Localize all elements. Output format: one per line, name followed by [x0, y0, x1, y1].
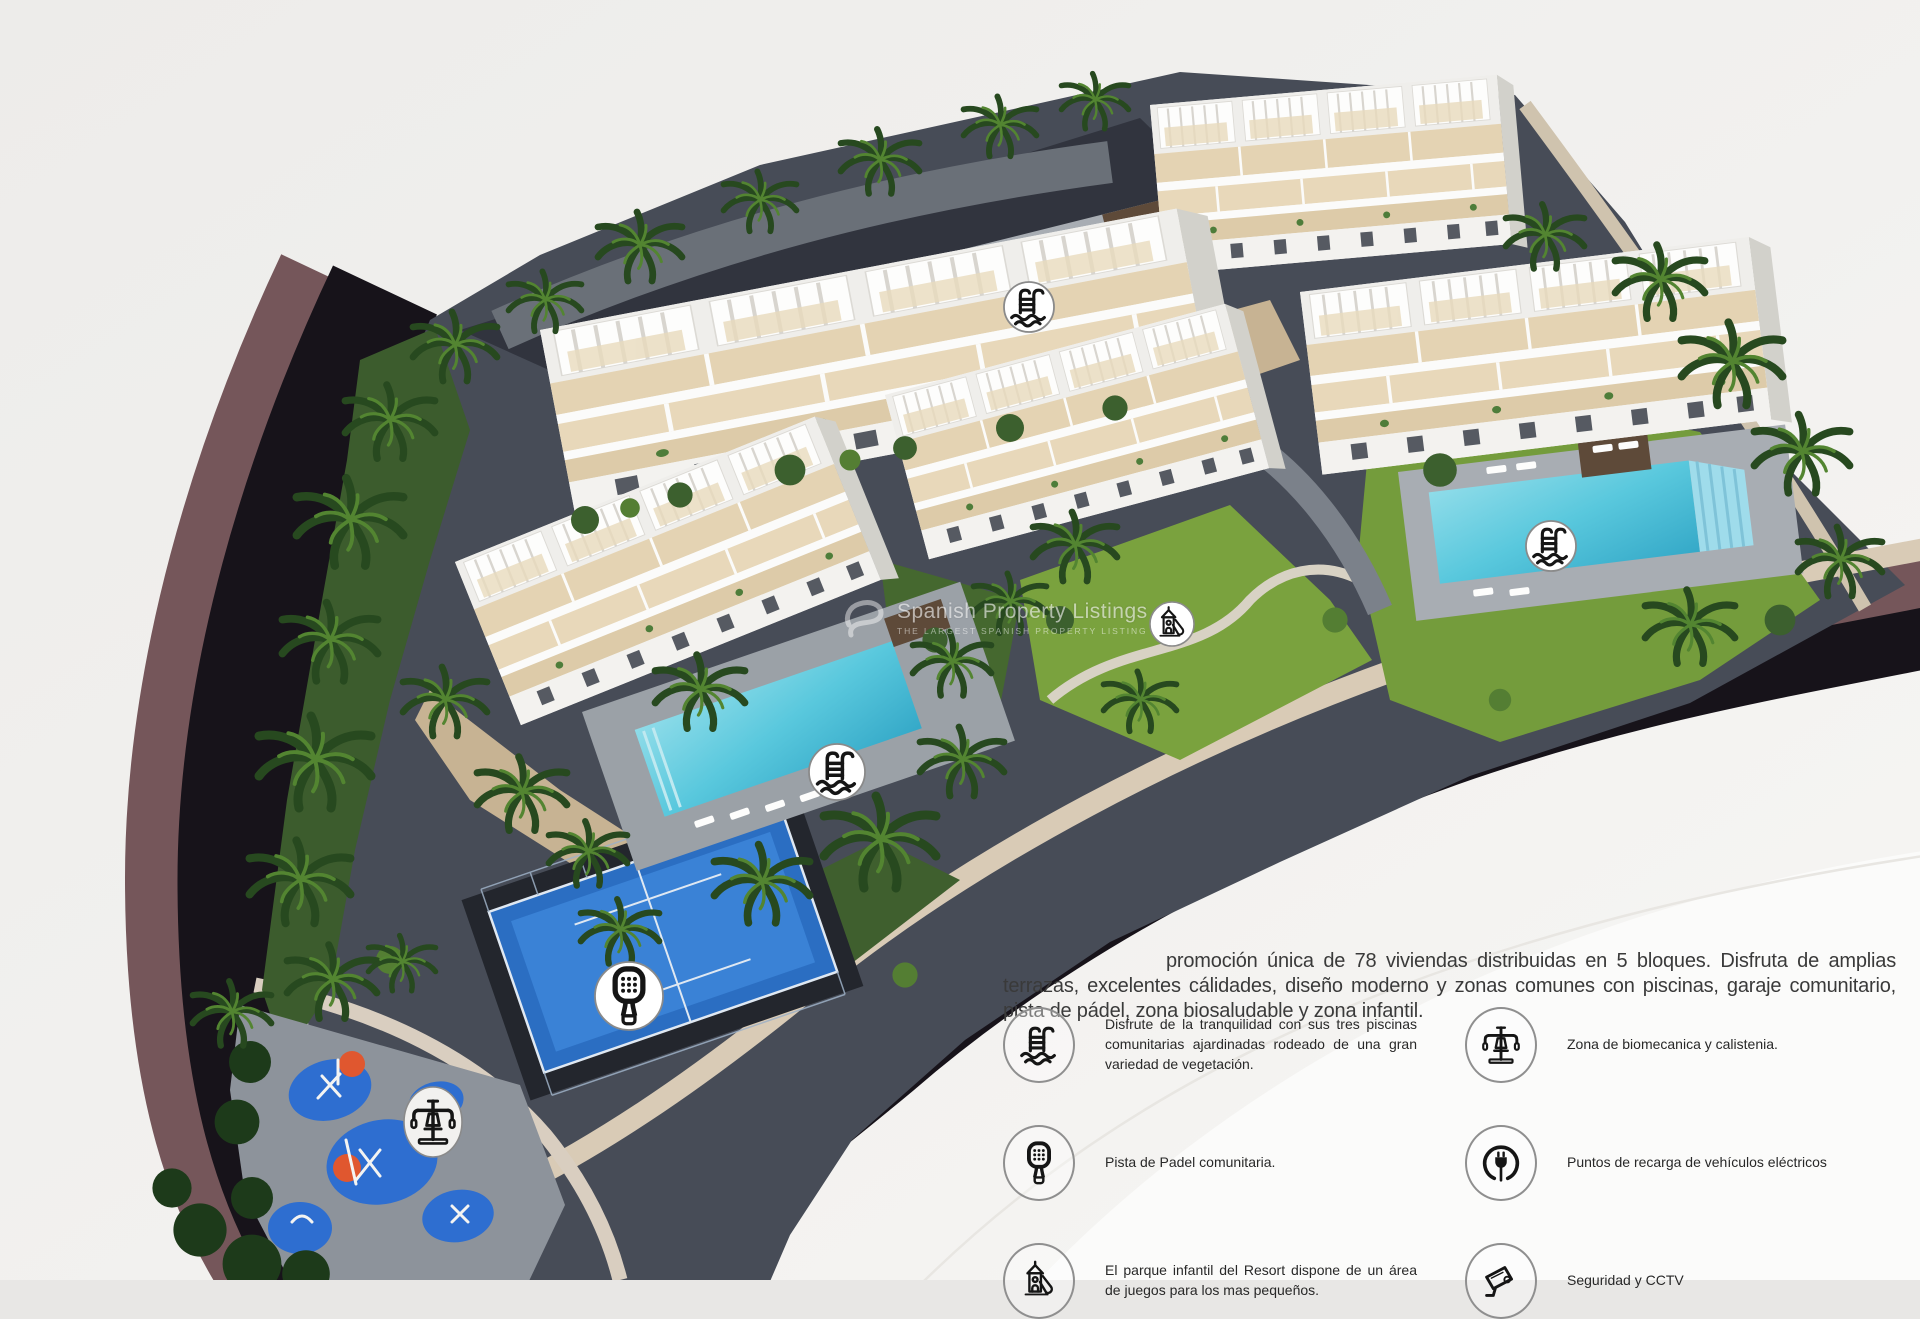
- map-marker-padel: [595, 962, 663, 1030]
- legend-item-pools: Disfrute de la tranquilidad con sus tres…: [1003, 1007, 1465, 1083]
- legend-item-label: Puntos de recarga de vehículos eléctrico…: [1567, 1153, 1920, 1173]
- legend-item-biomechanics: Zona de biomecanica y calistenia.: [1465, 1007, 1920, 1083]
- map-marker-pool-south: [809, 744, 865, 800]
- legend-item-ev-charging: Puntos de recarga de vehículos eléctrico…: [1465, 1125, 1920, 1201]
- legend-item-playground: El parque infantil del Resort dispone de…: [1003, 1243, 1465, 1319]
- legend-item-label: El parque infantil del Resort dispone de…: [1105, 1261, 1417, 1301]
- map-marker-biomechanics: [404, 1087, 462, 1157]
- cctv-icon: [1465, 1243, 1537, 1319]
- legend-item-label: Pista de Padel comunitaria.: [1105, 1153, 1417, 1173]
- legend-item-padel: Pista de Padel comunitaria.: [1003, 1125, 1465, 1201]
- promotional-site-plan-page: { "watermark": { "title": "Spanish Prope…: [0, 0, 1920, 1280]
- pool-ladder-icon: [1003, 1007, 1075, 1083]
- amenities-legend: Disfrute de la tranquilidad con sus tres…: [1003, 1007, 1915, 1319]
- map-marker-pool-north: [1004, 282, 1054, 332]
- biomechanics-icon: [1465, 1007, 1537, 1083]
- legend-item-cctv: Seguridad y CCTV: [1465, 1243, 1920, 1319]
- legend-item-label: Zona de biomecanica y calistenia.: [1567, 1035, 1920, 1055]
- map-marker-playground: [1150, 602, 1194, 646]
- map-marker-pool-east: [1526, 521, 1576, 571]
- playground-icon: [1003, 1243, 1075, 1319]
- legend-item-label: Disfrute de la tranquilidad con sus tres…: [1105, 1015, 1417, 1075]
- ev-charger-icon: [1465, 1125, 1537, 1201]
- padel-racket-icon: [1003, 1125, 1075, 1201]
- legend-item-label: Seguridad y CCTV: [1567, 1271, 1920, 1291]
